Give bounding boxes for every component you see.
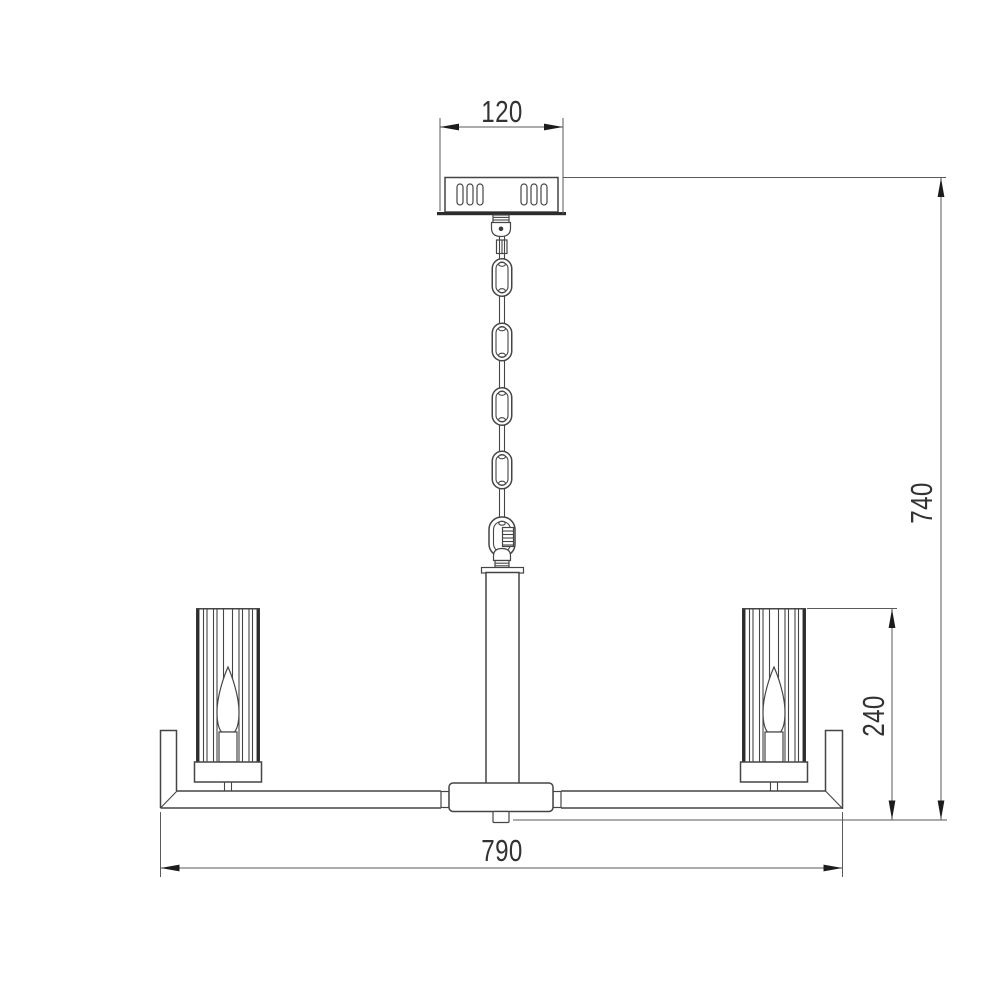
hub-side-tab-left — [441, 792, 449, 808]
hub-finial — [493, 812, 509, 823]
column-body — [486, 573, 519, 784]
column-top-dome — [494, 549, 511, 561]
quick-link-nut — [503, 528, 514, 547]
arrowhead-right — [544, 124, 563, 131]
left-lamp — [195, 608, 262, 792]
chain-link — [492, 259, 512, 297]
chain-link — [492, 388, 512, 426]
right-end-arm — [826, 731, 843, 810]
arrowhead-up — [938, 178, 945, 197]
arrowhead-left — [440, 124, 459, 131]
dimension-shade-drop: 240 — [807, 609, 897, 820]
bracket-hole — [499, 227, 504, 232]
left-end-arm — [161, 731, 178, 809]
center-hub — [449, 783, 553, 812]
chain-link — [492, 451, 512, 489]
chain-link — [492, 323, 512, 361]
hub-side-tab-right — [553, 792, 561, 808]
drawing-canvas: 120 740 240 790 — [0, 0, 1000, 1000]
right-lamp — [741, 608, 808, 792]
ceiling-canopy — [437, 178, 566, 216]
center-column — [482, 568, 524, 784]
arrowhead-up — [889, 609, 896, 628]
canopy-stem — [493, 215, 509, 223]
dimension-label-120: 120 — [481, 94, 522, 129]
chandelier-dimension-drawing: 120 740 240 790 — [0, 0, 1000, 1000]
suspension-chain — [489, 215, 515, 569]
wire-ferrule — [497, 240, 508, 254]
arrowhead-down — [889, 801, 896, 820]
arrowhead-down — [938, 801, 945, 820]
arrowhead-left — [161, 865, 180, 872]
dimension-label-790: 790 — [481, 833, 522, 868]
dimension-label-240: 240 — [856, 695, 891, 736]
arrowhead-right — [824, 865, 843, 872]
dimension-label-740: 740 — [904, 482, 939, 523]
